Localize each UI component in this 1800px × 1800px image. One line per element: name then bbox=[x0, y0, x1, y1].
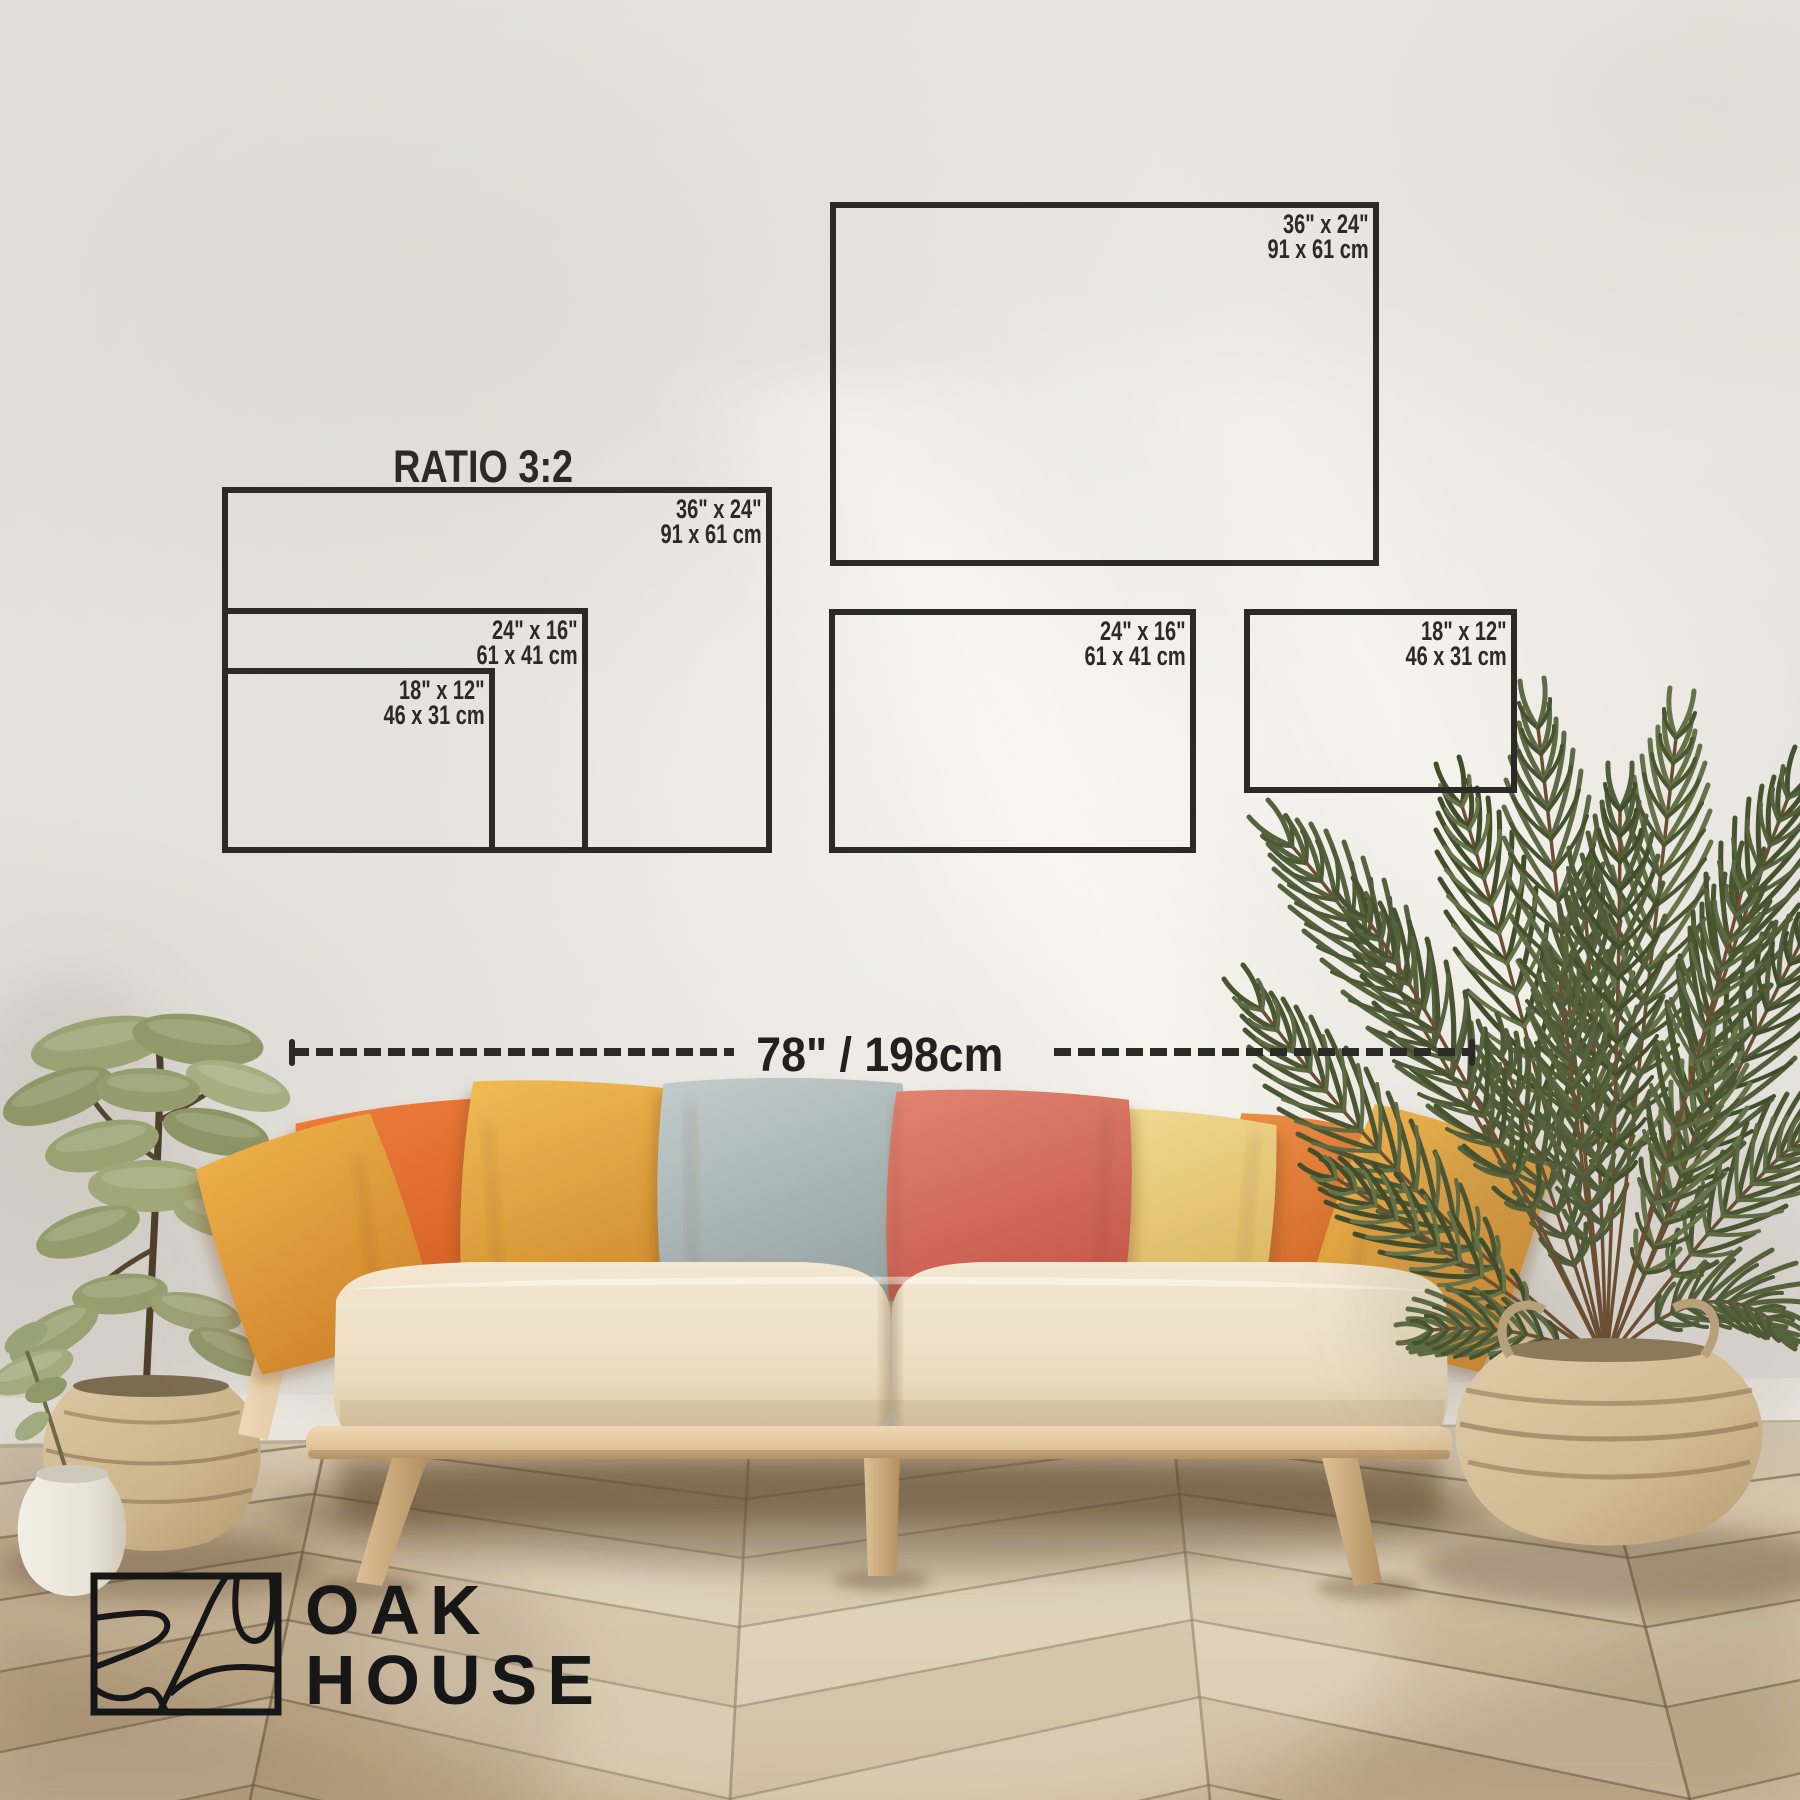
svg-text:OAK: OAK bbox=[305, 1571, 491, 1649]
svg-text:HOUSE: HOUSE bbox=[305, 1641, 604, 1719]
